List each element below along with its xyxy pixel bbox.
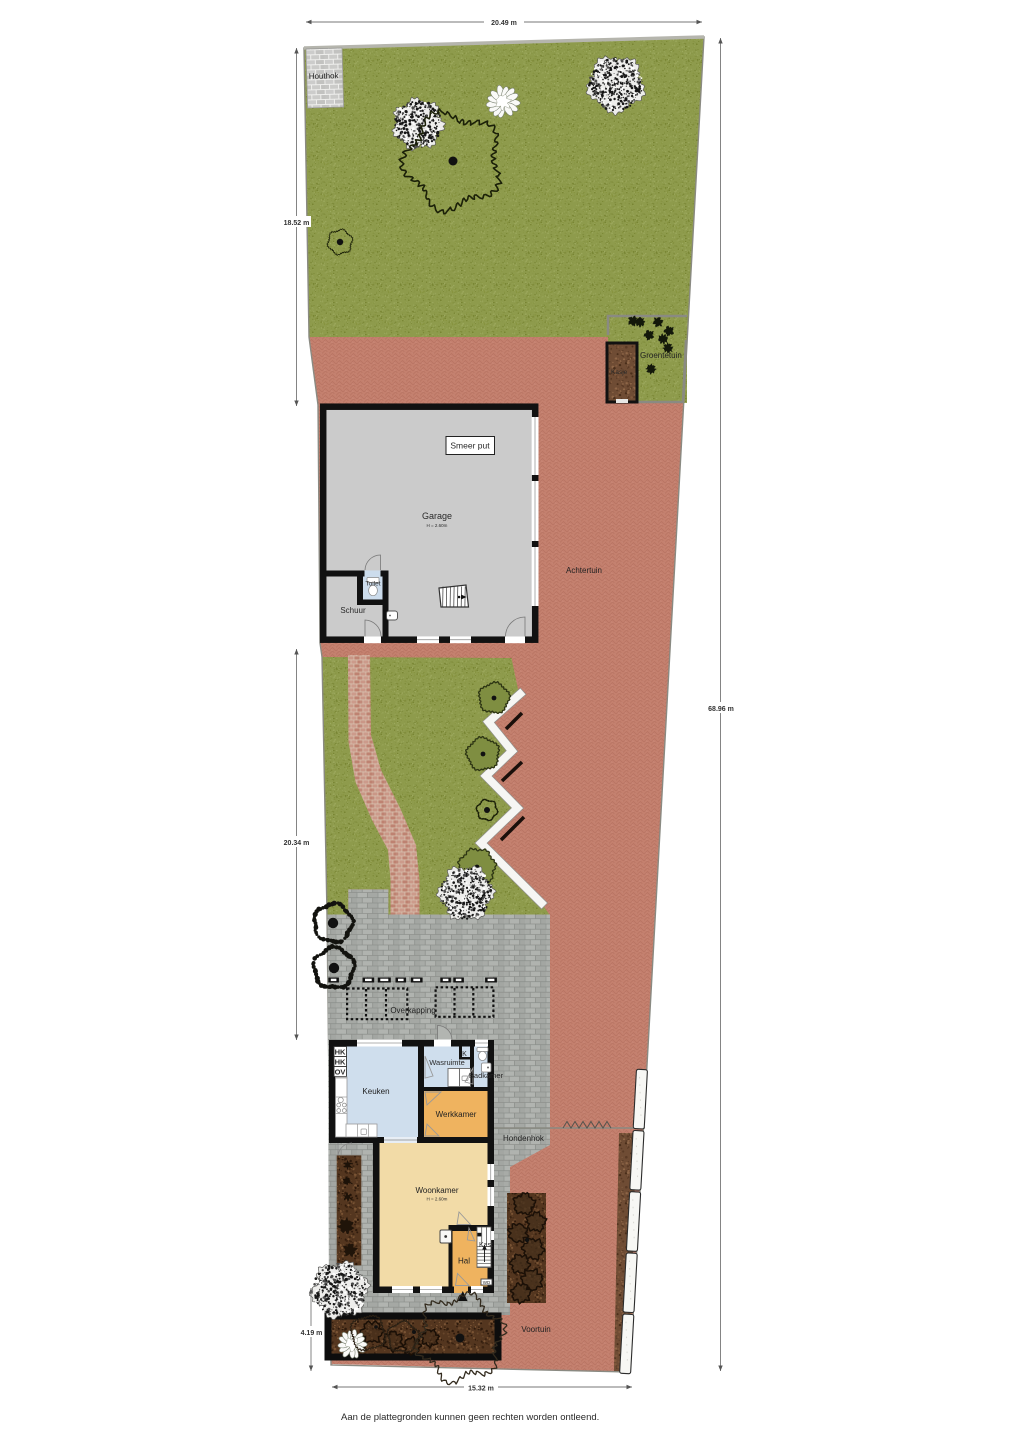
svg-text:Groentetuin: Groentetuin xyxy=(640,351,682,360)
svg-text:Kasje: Kasje xyxy=(611,369,628,376)
svg-text:Werkkamer: Werkkamer xyxy=(436,1110,477,1119)
svg-text:Badkamer: Badkamer xyxy=(469,1071,504,1080)
svg-text:Voortuin: Voortuin xyxy=(521,1325,550,1334)
svg-text:Achtertuin: Achtertuin xyxy=(566,566,602,575)
svg-text:Houthok: Houthok xyxy=(309,71,340,81)
svg-text:K: K xyxy=(462,1051,467,1058)
svg-text:Kast: Kast xyxy=(479,1242,493,1249)
svg-text:Toilet: Toilet xyxy=(365,581,380,588)
svg-text:Keuken: Keuken xyxy=(362,1087,389,1096)
svg-text:H = 2.60m: H = 2.60m xyxy=(427,523,448,528)
svg-text:HK: HK xyxy=(335,1048,346,1057)
svg-text:Smeer put: Smeer put xyxy=(450,441,490,451)
svg-text:HK: HK xyxy=(335,1058,346,1067)
svg-text:20.34 m: 20.34 m xyxy=(284,840,310,847)
svg-text:15.32 m: 15.32 m xyxy=(468,1386,494,1393)
svg-text:OV: OV xyxy=(335,1068,346,1077)
svg-text:Wasruimte: Wasruimte xyxy=(429,1058,465,1067)
svg-text:20.49 m: 20.49 m xyxy=(491,20,517,27)
svg-text:Garage: Garage xyxy=(422,511,452,521)
svg-text:Aan de plattegronden kunnen ge: Aan de plattegronden kunnen geen rechten… xyxy=(341,1412,599,1423)
svg-text:Hondenhok: Hondenhok xyxy=(503,1134,545,1143)
svg-text:Hal: Hal xyxy=(458,1257,470,1266)
svg-text:4.19 m: 4.19 m xyxy=(301,1330,323,1337)
svg-text:Schuur: Schuur xyxy=(340,606,366,615)
svg-text:H = 2.60m: H = 2.60m xyxy=(427,1197,448,1202)
svg-text:WD: WD xyxy=(483,1280,491,1285)
svg-text:18.52 m: 18.52 m xyxy=(284,220,310,227)
svg-text:Overkapping: Overkapping xyxy=(390,1006,435,1015)
svg-text:Woonkamer: Woonkamer xyxy=(416,1186,459,1195)
svg-text:68.96 m: 68.96 m xyxy=(708,706,734,713)
